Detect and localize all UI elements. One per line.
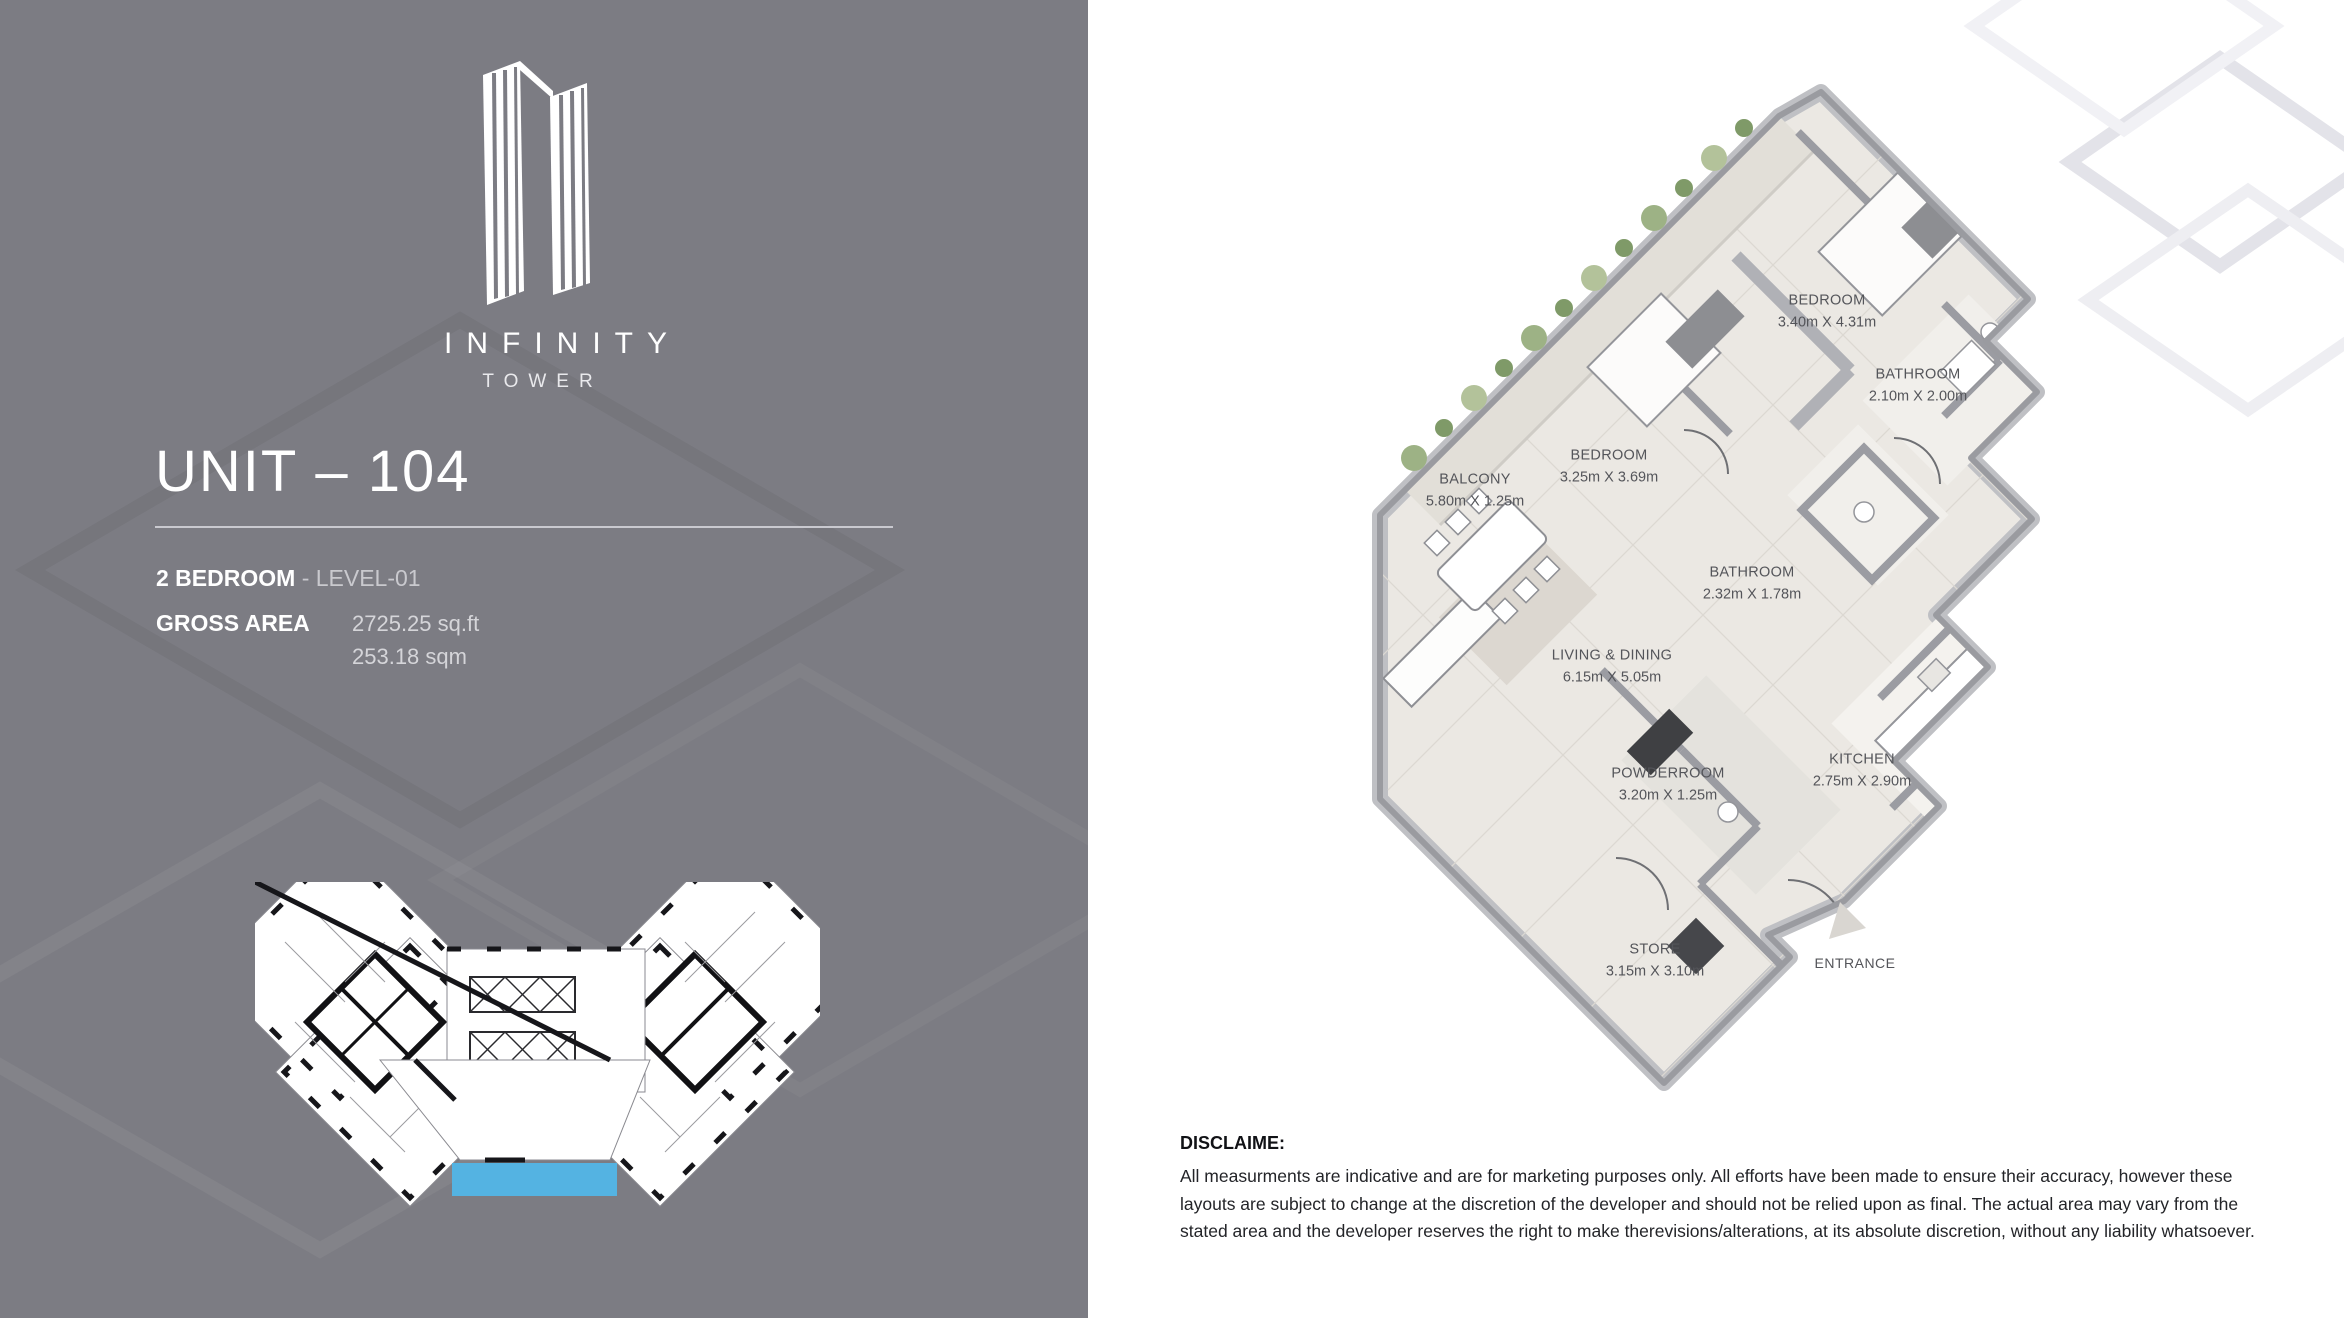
gross-area-sqft: 2725.25 sq.ft — [352, 611, 479, 637]
left-info-panel: INFINITY TOWER UNIT – 104 2 BEDROOM - LE… — [0, 0, 1088, 1318]
unit-bedrooms: 2 BEDROOM — [156, 565, 295, 591]
unit-level: - LEVEL-01 — [302, 565, 421, 591]
unit-type-row: 2 BEDROOM - LEVEL-01 — [156, 565, 421, 592]
unit-location-highlight — [452, 1163, 617, 1196]
brochure-page: { "brand": { "name": "INFINITY", "taglin… — [0, 0, 2344, 1318]
tower-logo-icon — [430, 55, 645, 320]
gross-area-sqm: 253.18 sqm — [352, 644, 467, 670]
brand-name: INFINITY — [430, 327, 645, 361]
brand-tagline: TOWER — [430, 371, 645, 393]
building-key-plan — [255, 882, 820, 1222]
title-divider — [155, 526, 893, 528]
unit-title: UNIT – 104 — [155, 438, 471, 505]
gross-area-label: GROSS AREA — [156, 610, 310, 637]
entrance-label: ENTRANCE — [1814, 955, 1895, 971]
floorplan-panel: BEDROOM 3.40m X 4.31m BATHROOM 2.10m X 2… — [1088, 0, 2344, 1318]
disclaimer-block: DISCLAIME: All measurments are indicativ… — [1180, 1133, 2280, 1246]
disclaimer-body: All measurments are indicative and are f… — [1180, 1163, 2280, 1246]
disclaimer-heading: DISCLAIME: — [1180, 1133, 2280, 1154]
brand-logo: INFINITY TOWER — [430, 55, 645, 393]
unit-floorplan-drawing — [1088, 0, 2344, 1318]
